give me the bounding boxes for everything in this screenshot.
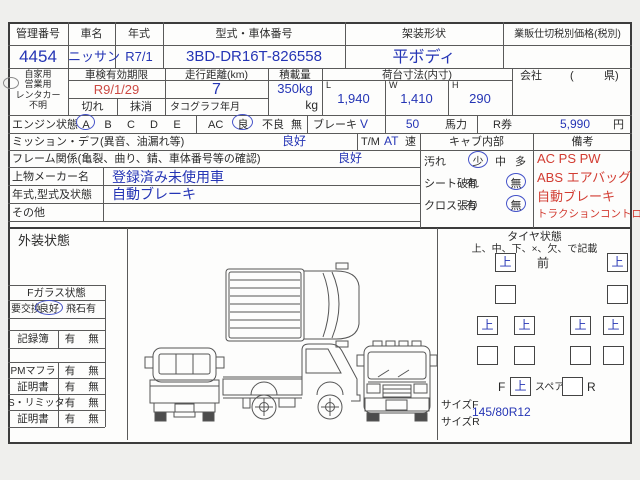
- mileage-label: 走行距離(km): [165, 70, 268, 82]
- remark-line-4: トラクションコントロール: [537, 209, 640, 221]
- company-paren-close: 県): [604, 70, 619, 82]
- frame-value: 良好: [338, 152, 362, 165]
- engine-condition-label: エンジン状態: [12, 119, 78, 131]
- inspection-expiry-value: R9/1/29: [68, 83, 165, 97]
- col-header-chassis-number: 型式・車体番号: [163, 28, 345, 40]
- tire-row3-box-3: 上: [570, 316, 591, 335]
- remark-line-2: ABS エアバッグ: [537, 171, 631, 185]
- body-shape-value: 平ボディ: [345, 49, 503, 67]
- bed-length-value: 1,940: [322, 92, 385, 106]
- grid-line: [8, 167, 420, 168]
- payload-value: 350kg: [268, 82, 322, 96]
- company-paren-open: (: [570, 70, 574, 82]
- record-book-no: 無: [82, 334, 105, 346]
- inspection-expiry-label: 車検有効期限: [68, 70, 165, 82]
- cab-interior-header: キャブ内部: [420, 136, 533, 148]
- front-glass-header: Fガラス状態: [8, 288, 105, 300]
- rken-label: R券: [493, 119, 512, 131]
- model-year-value: R7/1: [115, 50, 163, 64]
- remark-line-1: AC PS PW: [537, 152, 601, 166]
- pm-muffler-yes: 有: [58, 366, 82, 378]
- tire-row4-box-4: [603, 346, 624, 365]
- tire-row4-box-3: [570, 346, 591, 365]
- company-label: 会社: [520, 70, 542, 82]
- dirt-mid: 中: [495, 156, 506, 168]
- engine-grade-b: B: [102, 119, 114, 131]
- grid-line: [357, 133, 358, 150]
- truck-top-view: [226, 263, 359, 347]
- glass-good-option: 良好: [39, 304, 59, 315]
- truck-diagrams: [127, 228, 437, 440]
- bed-width-key: W: [389, 81, 398, 91]
- certificate-no: 無: [82, 382, 105, 394]
- grid-line: [8, 427, 105, 428]
- grid-line: [437, 228, 438, 440]
- yen-label: 円: [613, 119, 624, 131]
- inspection-expired-option: 切れ: [68, 101, 117, 113]
- tire-row3-box-4: 上: [603, 316, 624, 335]
- bed-height-value: 290: [448, 92, 512, 106]
- mission-diff-value: 良好: [282, 135, 306, 148]
- engine-grade-e: E: [171, 119, 183, 131]
- grid-line: [385, 115, 386, 133]
- payload-unit: kg: [268, 99, 318, 112]
- tachograph-label: タコグラフ年月: [170, 102, 240, 113]
- tire-row2-right-box: [607, 285, 628, 304]
- remark-line-3: 自動ブレーキ: [537, 190, 615, 204]
- certificate2-no: 無: [82, 414, 105, 426]
- tire-condition-title: タイヤ状態: [437, 231, 632, 243]
- bed-height-key: H: [452, 81, 459, 91]
- tire-front-left-box: 上: [495, 253, 516, 272]
- grid-line: [8, 330, 105, 331]
- truck-front-view: [357, 341, 437, 421]
- seat-tear-no: 無: [509, 178, 523, 190]
- dirt-label: 汚れ: [424, 156, 446, 168]
- speed-limiter-label: S・リミッタ: [8, 398, 58, 409]
- grid-line: [8, 115, 632, 116]
- grid-line: [8, 394, 105, 395]
- tire-row2-left-box: [495, 285, 516, 304]
- truck-side-view: [223, 344, 360, 419]
- engine-grade-c: C: [125, 119, 137, 131]
- col-header-body-shape: 架装形状: [345, 28, 503, 40]
- remarks-header: 備考: [533, 136, 632, 148]
- grid-line: [8, 203, 420, 204]
- certificate2-label: 証明書: [8, 414, 58, 426]
- ac-none: 無: [291, 119, 302, 131]
- tire-row3-box-1: 上: [477, 316, 498, 335]
- model-state-value: 自動ブレーキ: [112, 187, 196, 202]
- chassis-number-value: 3BD-DR16T-826558: [163, 49, 345, 66]
- grid-line: [477, 115, 478, 133]
- tire-f-label: F: [498, 381, 505, 394]
- mileage-value: 7: [165, 81, 268, 99]
- grid-line: [8, 410, 105, 411]
- ac-bad: 不良: [262, 119, 284, 131]
- inspection-deregistered-option: 抹消: [117, 101, 165, 113]
- grid-line: [307, 115, 308, 133]
- control-number-value: 4454: [8, 48, 68, 67]
- engine-grade-a: A: [80, 119, 92, 131]
- dirt-low: 少: [471, 156, 485, 168]
- grid-line: [103, 167, 104, 221]
- record-book-label: 記録簿: [8, 334, 58, 346]
- tm-unit: 速: [405, 136, 416, 148]
- tire-condition-legend: 上、中、下、×、欠、で記載: [437, 244, 632, 255]
- speed-limiter-yes: 有: [58, 398, 82, 410]
- truck-rear-view: [145, 348, 224, 421]
- body-maker-value: 登録済み未使用車: [112, 170, 224, 185]
- grid-line: [512, 68, 513, 115]
- ac-good: 良: [236, 119, 250, 131]
- grid-line: [105, 285, 106, 427]
- seat-tear-yes: 有: [466, 178, 477, 190]
- certificate-label: 証明書: [8, 382, 58, 394]
- certificate-yes: 有: [58, 382, 82, 394]
- ac-label: AC: [208, 119, 223, 131]
- bed-width-value: 1,410: [385, 92, 448, 106]
- usage-unknown: 不明: [10, 101, 66, 111]
- col-header-wholesale-price: 業販仕切税別価格(税別): [503, 29, 632, 40]
- pm-muffler-no: 無: [82, 366, 105, 378]
- exterior-condition-label: 外装状態: [18, 234, 70, 248]
- speed-limiter-no: 無: [82, 398, 105, 410]
- tire-front-label: 前: [528, 257, 558, 270]
- certificate2-yes: 有: [58, 414, 82, 426]
- col-header-car-name: 車名: [68, 28, 115, 40]
- bed-dimensions-label: 荷台寸法(内寸): [322, 70, 512, 82]
- payload-label: 積載量: [268, 70, 322, 82]
- tire-row4-box-1: [477, 346, 498, 365]
- tm-value: AT: [384, 135, 398, 148]
- cloth-no: 無: [509, 200, 523, 212]
- mission-diff-label: ミッション・デフ(異音、油漏れ等): [12, 136, 184, 148]
- auction-sheet-photo: 管理番号 車名 年式 型式・車体番号 架装形状 業販仕切税別価格(税別) 445…: [0, 0, 640, 480]
- grid-line: [8, 45, 632, 46]
- grid-line: [8, 133, 632, 134]
- cloth-yes: 有: [466, 200, 477, 212]
- body-maker-label: 上物メーカー名: [12, 171, 89, 183]
- spare-label: スペア: [535, 382, 564, 393]
- col-header-control-number: 管理番号: [8, 28, 68, 40]
- spare-box: [562, 377, 583, 396]
- tire-row3-box-2: 上: [514, 316, 535, 335]
- pm-muffler-label: PMマフラ: [8, 366, 58, 377]
- frame-label: フレーム関係(亀裂、曲り、錆、車体番号等の確認): [12, 153, 261, 165]
- horsepower-value: 50: [390, 118, 435, 131]
- record-book-yes: 有: [58, 334, 82, 346]
- size-r-label: サイズR: [441, 417, 480, 429]
- grid-line: [8, 362, 105, 363]
- brake-value: V: [360, 118, 368, 131]
- horsepower-label: 馬力: [445, 119, 467, 131]
- col-header-model-year: 年式: [115, 28, 163, 40]
- size-f-value: 145/80R12: [472, 406, 531, 419]
- tire-front-right-box: 上: [607, 253, 628, 272]
- tire-f-box: 上: [510, 377, 531, 396]
- bed-length-key: L: [326, 81, 331, 91]
- grid-line: [8, 285, 105, 286]
- tire-r-label: R: [587, 381, 596, 394]
- glass-stone-chip-option: 飛石有: [66, 304, 96, 315]
- grid-line: [196, 115, 197, 133]
- engine-grade-d: D: [148, 119, 160, 131]
- grid-line: [8, 378, 105, 379]
- other-label: その他: [12, 207, 45, 219]
- car-name-value: ニッサン: [68, 50, 115, 64]
- grid-line: [8, 348, 105, 349]
- grid-line: [8, 318, 105, 319]
- dirt-high: 多: [515, 156, 526, 168]
- grid-line: [8, 221, 420, 222]
- tm-label: T/M: [361, 136, 380, 148]
- brake-label: ブレーキ: [313, 119, 357, 131]
- usage-commercial: 営業用: [10, 80, 66, 90]
- model-state-label: 年式,型式及状態: [12, 189, 92, 201]
- rken-value: 5,990: [545, 118, 605, 131]
- tire-row4-box-2: [514, 346, 535, 365]
